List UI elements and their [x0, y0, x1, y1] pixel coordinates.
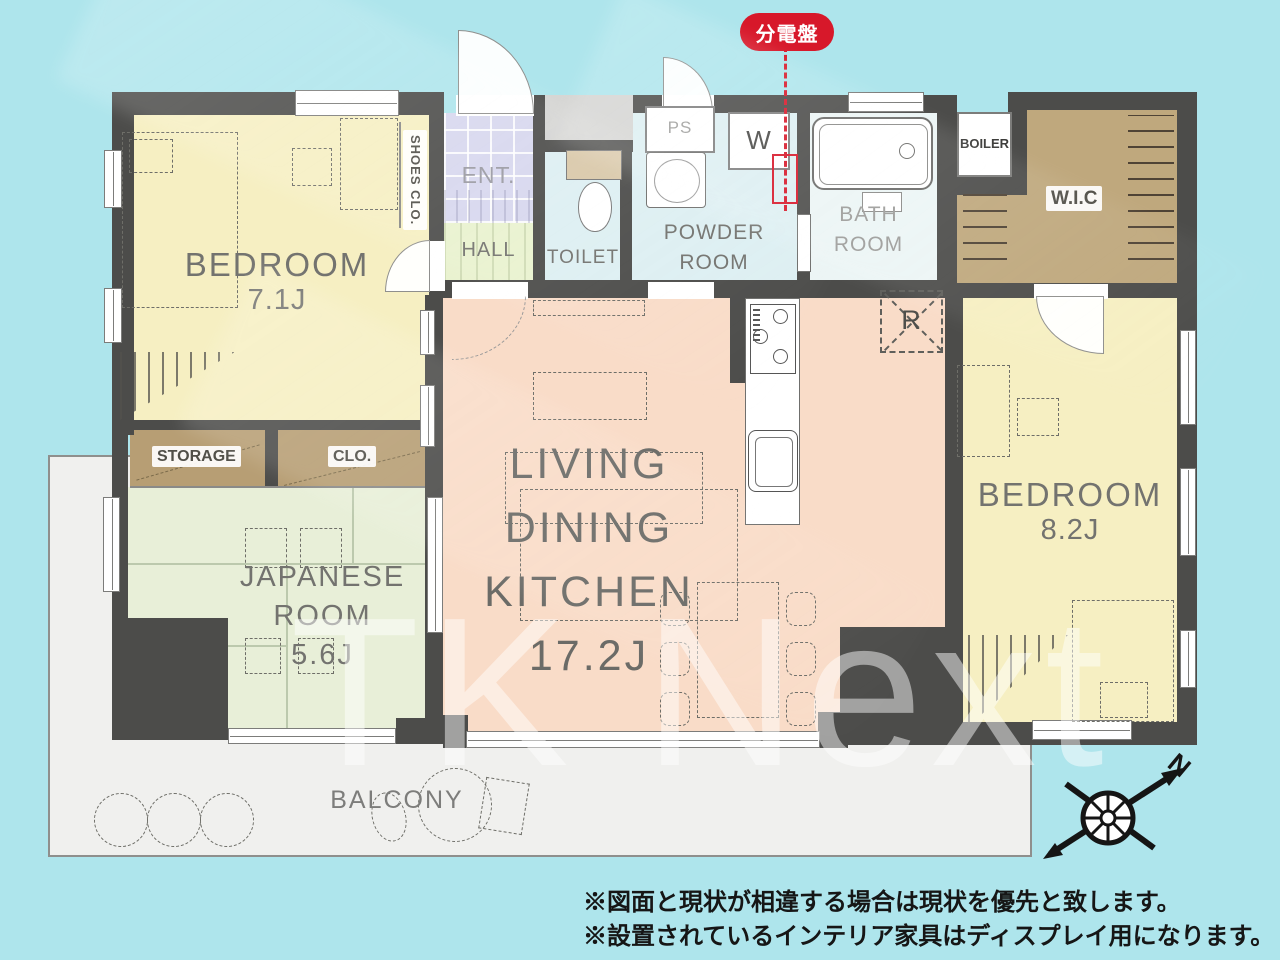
disclaimer-note: ※設置されているインテリア家具はディスプレイ用になります。 [583, 916, 1274, 951]
badge-label: 分電盤 [756, 18, 819, 47]
entrance-door [458, 30, 534, 114]
balcony-plant [200, 793, 254, 847]
powder-sink [646, 152, 706, 208]
wall [1027, 92, 1197, 110]
window [1180, 630, 1196, 688]
compass-rose: N [1042, 742, 1192, 867]
window [848, 92, 924, 112]
room-name: LIVING [443, 432, 735, 496]
room-name: POWDER [630, 218, 798, 248]
desk [340, 118, 398, 210]
window [104, 150, 122, 208]
shoes-closet-label: SHOES CLO. [403, 130, 427, 230]
room-size: 8.2J [957, 514, 1183, 547]
desk [957, 365, 1010, 457]
door-threshold [648, 282, 714, 299]
dining-chair [786, 692, 816, 726]
side-table [1017, 398, 1059, 436]
wall [396, 718, 443, 744]
balcony-label: BALCONY [322, 786, 472, 815]
pillow [129, 139, 173, 173]
entrance-step [444, 190, 533, 223]
room-name: BEDROOM [957, 476, 1183, 514]
window [103, 497, 120, 592]
door-threshold [429, 241, 445, 291]
bath-room-label: BATH ROOM [800, 200, 937, 260]
room-name: JAPANESE [196, 558, 449, 597]
dining-chair [660, 692, 690, 726]
tv-board [533, 300, 645, 316]
boiler-label: BOILER [957, 136, 1012, 151]
window [1032, 720, 1132, 740]
room-size: 17.2J [443, 624, 735, 688]
window [1180, 330, 1196, 425]
stove-burner [773, 309, 788, 324]
room-name: BEDROOM [152, 246, 402, 284]
balcony-chair [478, 777, 530, 835]
ldk-label: LIVING DINING KITCHEN 17.2J [443, 432, 735, 688]
powder-room-label: POWDER ROOM [630, 218, 798, 278]
balcony-plant [147, 793, 201, 847]
closet-label: CLO. [328, 446, 376, 467]
distribution-board-box [772, 154, 798, 204]
wall [443, 715, 468, 748]
floor-plan-canvas: BEDROOM 7.1J SHOES CLO. ENT. HALL TOILET… [0, 0, 1280, 960]
sink-basin [755, 437, 793, 487]
washer-label: W [728, 125, 790, 156]
room-name: ROOM [800, 230, 937, 260]
room-name: ROOM [630, 248, 798, 278]
wic-hanger-pipe [1128, 115, 1174, 260]
service-door [663, 57, 713, 113]
wall [265, 428, 278, 487]
toilet-label: TOILET [533, 247, 633, 269]
room-size: 7.1J [152, 284, 402, 317]
bedroom1-label: BEDROOM 7.1J [152, 246, 402, 317]
soffit [545, 95, 633, 140]
wall [945, 298, 963, 628]
powder-basin [654, 159, 700, 203]
wall [730, 298, 745, 383]
wic-hanger-pipe [963, 192, 1007, 260]
room-name: BATH [800, 200, 937, 230]
stove [750, 304, 796, 374]
grill [753, 307, 760, 341]
ps-label: PS [645, 118, 715, 138]
window [420, 385, 435, 447]
wall [937, 95, 957, 285]
fridge-label: R [880, 305, 943, 336]
wall-line [130, 486, 425, 488]
wall-line [399, 122, 401, 228]
window [104, 288, 122, 343]
hall-label: HALL [444, 239, 533, 262]
bedroom2-label: BEDROOM 8.2J [957, 476, 1183, 547]
stove-burner [773, 349, 788, 364]
toilet-tank [566, 150, 622, 180]
room-name: DINING [443, 496, 735, 560]
window-sliding [466, 731, 820, 748]
window [420, 310, 435, 355]
bathtub-drain [899, 143, 915, 159]
wall-block [840, 627, 963, 745]
distribution-board-badge: 分電盤 [740, 13, 834, 51]
room-size: 5.6J [196, 636, 449, 675]
sofa [533, 372, 647, 420]
disclaimer-note: ※図面と現状が相違する場合は現状を優先と致します。 [583, 882, 1181, 917]
bed-footboard [1100, 682, 1148, 718]
bathtub [812, 117, 933, 190]
dining-chair [786, 592, 816, 626]
window [295, 90, 399, 116]
balcony-plant [94, 793, 148, 847]
room-name: ROOM [196, 597, 449, 636]
tatami-line [352, 487, 354, 563]
wic-label: W.I.C [1046, 186, 1102, 211]
dining-chair [786, 642, 816, 676]
storage-label: STORAGE [152, 446, 241, 467]
side-table [292, 148, 332, 186]
entrance-label: ENT. [444, 162, 533, 189]
wall [818, 712, 848, 748]
window [228, 728, 396, 744]
kitchen-sink [748, 430, 798, 492]
toilet-bowl [578, 182, 612, 232]
japanese-room-label: JAPANESE ROOM 5.6J [196, 558, 449, 675]
room-name: KITCHEN [443, 560, 735, 624]
